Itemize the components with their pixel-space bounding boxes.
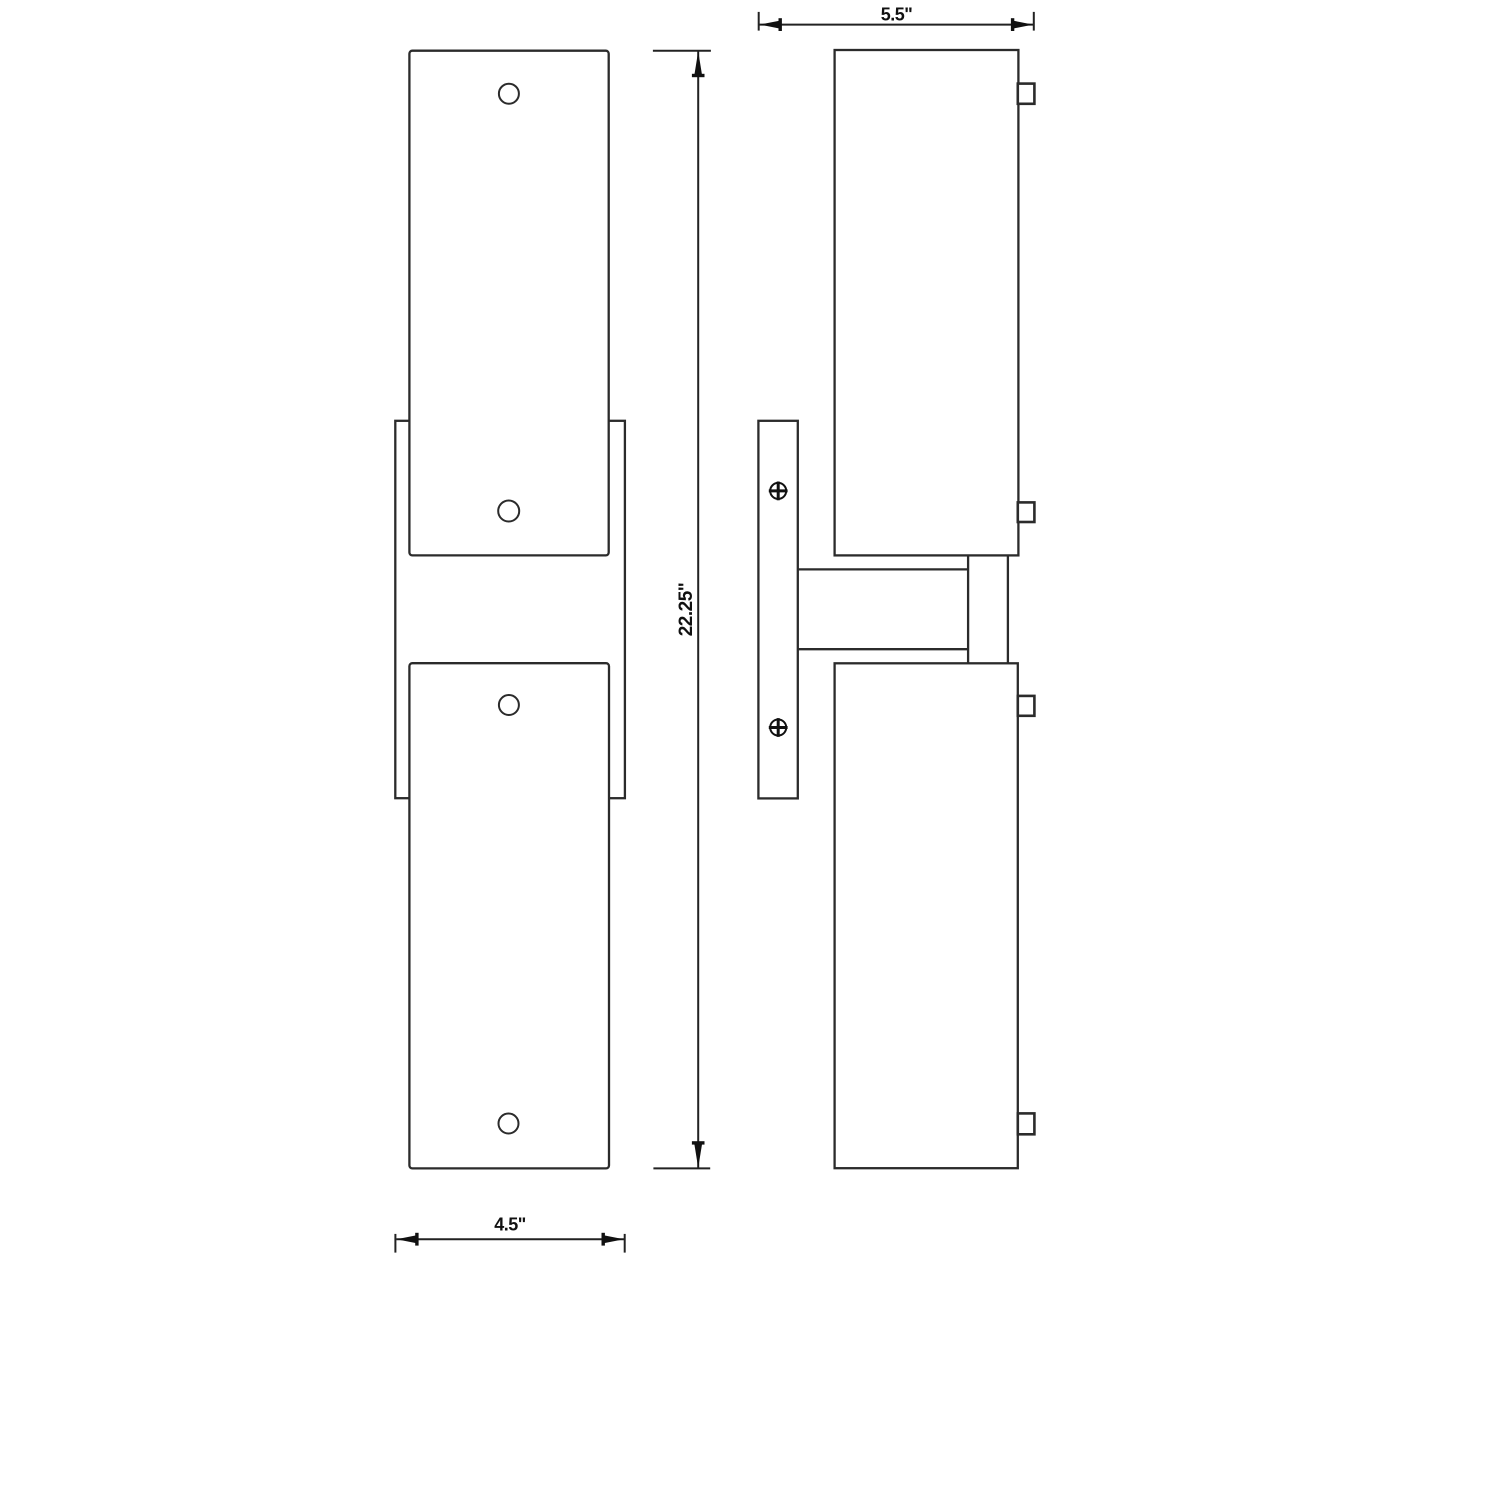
svg-text:22.25": 22.25" — [676, 583, 697, 637]
svg-text:4.5": 4.5" — [494, 1215, 526, 1235]
svg-text:5.5": 5.5" — [881, 5, 913, 25]
